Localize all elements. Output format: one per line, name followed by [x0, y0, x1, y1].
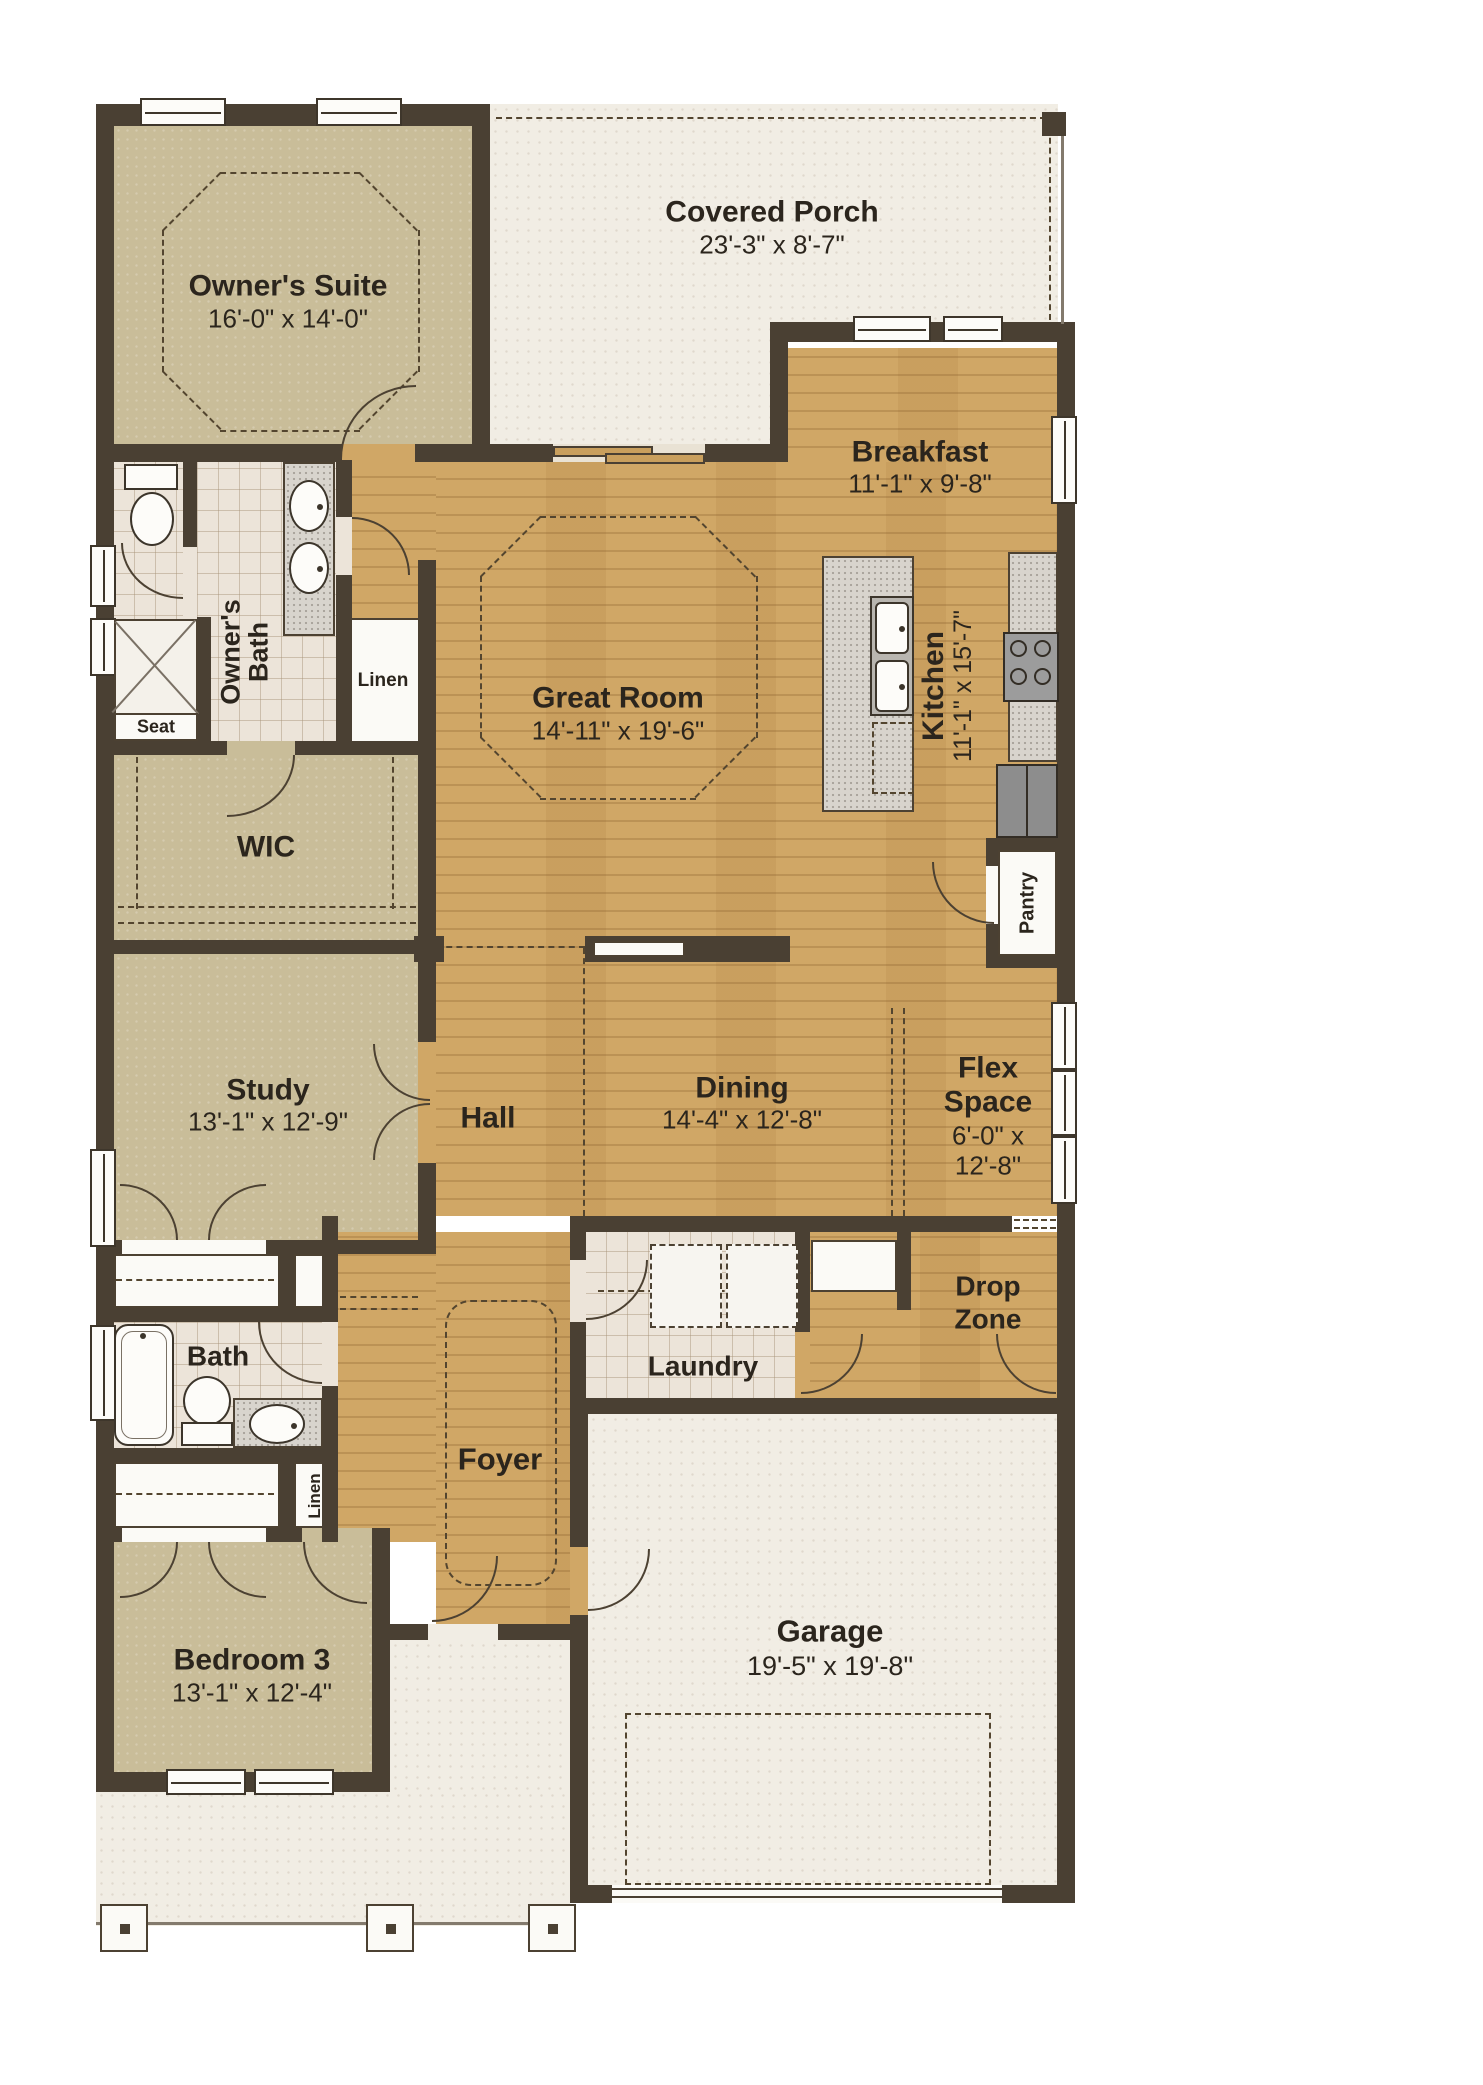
dashed-line: [903, 1008, 905, 1216]
dashed-line: [540, 798, 696, 800]
burner-icon: [1010, 640, 1027, 657]
window-sash-line: [171, 1782, 241, 1784]
wall-segment: [280, 1462, 294, 1528]
window-sash-line: [1064, 1141, 1066, 1199]
front-porch-floor-entry: [390, 1640, 570, 1790]
covered-porch-label: Covered Porch: [665, 196, 878, 228]
porch-post: [528, 1904, 576, 1952]
wall-segment: [96, 940, 436, 954]
laundry-label: Laundry: [648, 1351, 758, 1380]
dining-dims: 14'-4" x 12'-8": [662, 1106, 822, 1133]
window-sash-line: [103, 623, 105, 671]
dashed-outline: [625, 1713, 991, 1885]
study-label: Study: [226, 1074, 309, 1106]
window: [1051, 416, 1077, 504]
door-opening: [183, 545, 197, 619]
wall-segment: [96, 444, 342, 462]
dashed-line: [436, 946, 585, 948]
bath-sink: [249, 1404, 305, 1444]
flex-space-dims: 12'-8": [955, 1152, 1021, 1179]
breakfast-dims: 11'-1" x 9'-8": [848, 470, 992, 497]
refrigerator-door-split: [1026, 766, 1028, 836]
flex-space-label: Space: [944, 1086, 1032, 1118]
washer: [650, 1244, 722, 1328]
wall-segment: [472, 104, 490, 462]
wall-segment: [414, 936, 444, 962]
linen-label: Linen: [358, 671, 409, 691]
sink-basin: [875, 660, 909, 712]
dashed-line: [496, 117, 1046, 119]
garage-dims: 19'-5" x 19'-8": [747, 1652, 913, 1680]
window-sash-line: [103, 1330, 105, 1416]
wall-segment: [266, 1528, 302, 1542]
window: [1051, 1070, 1077, 1136]
window-sash-line: [948, 329, 998, 331]
covered-porch-dims: 23'-3" x 8'-7": [699, 231, 844, 258]
dashed-line: [118, 922, 416, 924]
window: [90, 1149, 116, 1247]
wall-segment: [986, 956, 1075, 968]
window: [254, 1769, 334, 1795]
dashed-line: [1014, 1219, 1056, 1221]
bathtub-inner: [121, 1331, 167, 1439]
pantry-label: Pantry: [1018, 872, 1039, 934]
dryer: [726, 1244, 798, 1328]
flex-space-label: Flex: [958, 1052, 1018, 1084]
door-opening: [428, 1624, 498, 1640]
study-dims: 13'-1" x 12'-9": [188, 1108, 348, 1135]
bedroom3-label: Bedroom 3: [174, 1644, 331, 1676]
wall-segment: [570, 1398, 588, 1547]
dashed-line: [891, 1008, 893, 1216]
dashed-line: [220, 430, 360, 432]
sliding-door-panel: [605, 453, 705, 464]
dashed-line: [118, 906, 416, 908]
window: [90, 1325, 116, 1421]
window: [853, 316, 931, 342]
wall-segment: [183, 460, 197, 547]
toilet-bowl: [183, 1376, 231, 1426]
wall-segment: [96, 1448, 336, 1462]
door-opening: [322, 1322, 338, 1386]
wall-segment: [322, 1216, 338, 1322]
great-room-dims: 14'-11" x 19'-6": [532, 717, 704, 744]
sink-basin: [875, 602, 909, 654]
drop-zone-bench: [811, 1240, 897, 1292]
dashed-line: [480, 576, 482, 738]
window: [316, 98, 402, 126]
window: [166, 1769, 246, 1795]
door-opening: [336, 517, 352, 577]
window: [140, 98, 226, 126]
porch-slab-edge-right: [1061, 114, 1064, 324]
garage-door-line: [612, 1888, 1002, 1890]
door-opening: [227, 741, 295, 755]
cased-opening: [593, 941, 685, 957]
window-sash-line: [858, 329, 926, 331]
toilet-tank: [124, 464, 178, 490]
burner-icon: [1010, 668, 1027, 685]
bedroom3-dims: 13'-1" x 12'-4": [172, 1679, 332, 1706]
wall-segment: [570, 1216, 586, 1260]
wall-segment: [336, 460, 352, 517]
window: [1051, 1136, 1077, 1204]
wall-segment: [415, 444, 555, 462]
corridor-floor: [338, 1232, 436, 1542]
wall-segment: [295, 741, 436, 755]
dashed-line: [540, 516, 696, 518]
wall-segment: [280, 1254, 294, 1308]
toilet-tank: [181, 1422, 233, 1446]
wall-segment: [266, 1240, 436, 1254]
wall-segment: [770, 322, 788, 462]
kitchen-label: Kitchen 11'-1" x 15'-7": [918, 610, 976, 762]
dashed-line: [1049, 128, 1051, 320]
tub-faucet: [140, 1333, 146, 1339]
dashed-line: [340, 1296, 418, 1298]
dashed-line: [340, 1308, 418, 1310]
wall-segment: [322, 1386, 338, 1542]
wall-segment: [588, 1885, 614, 1903]
window-sash-line: [1064, 1075, 1066, 1131]
dashed-line: [418, 230, 420, 372]
vanity-sink: [289, 480, 329, 532]
window-sash-line: [1064, 421, 1066, 499]
seat-label: Seat: [137, 718, 175, 737]
window-sash-line: [259, 1782, 329, 1784]
owners-bath-label: Owner's Bath: [217, 599, 274, 704]
window: [90, 618, 116, 676]
wall-segment: [96, 1308, 336, 1322]
breakfast-label: Breakfast: [852, 436, 989, 468]
porch-corner-post: [1042, 112, 1066, 136]
dashed-line: [136, 757, 138, 909]
wic-label: WIC: [237, 831, 295, 863]
window: [90, 545, 116, 607]
owners-suite-dims: 16'-0" x 14'-0": [208, 305, 368, 332]
wall-segment: [897, 1232, 911, 1310]
dining-label: Dining: [695, 1072, 788, 1104]
burner-icon: [1034, 640, 1051, 657]
floor-plan: Covered Porch 23'-3" x 8'-7" Owner's Sui…: [0, 0, 1483, 2085]
window-sash-line: [103, 1154, 105, 1242]
wall-segment: [96, 741, 227, 755]
toilet-bowl: [130, 492, 174, 546]
wall-segment: [570, 1398, 1075, 1414]
door-opening: [122, 1240, 266, 1254]
wall-segment: [418, 560, 436, 1042]
great-room-label: Great Room: [532, 682, 704, 714]
study-closet: [114, 1254, 280, 1308]
dashed-line: [756, 576, 758, 738]
door-opening: [122, 1528, 268, 1542]
wall-segment: [986, 924, 998, 960]
front-porch-slab-edge: [96, 1922, 570, 1925]
front-porch-floor: [96, 1790, 570, 1926]
owners-suite-label: Owner's Suite: [189, 270, 388, 302]
porch-post: [100, 1904, 148, 1952]
wall-segment: [570, 1322, 586, 1400]
wall-segment: [986, 838, 1075, 850]
hall-label: Hall: [460, 1102, 515, 1134]
dashed-line: [392, 757, 394, 909]
window-sash-line: [103, 550, 105, 602]
wall-segment: [197, 617, 211, 743]
dashed-line: [1014, 1227, 1056, 1229]
covered-porch-floor-lower: [490, 324, 770, 462]
wall-segment: [96, 1528, 122, 1542]
dashed-line: [162, 230, 164, 372]
dashed-line: [220, 172, 360, 174]
wall-segment: [418, 1163, 436, 1242]
linen-label: Linen: [306, 1473, 324, 1518]
porch-post: [366, 1904, 414, 1952]
wall-segment: [570, 1615, 588, 1903]
bath-label: Bath: [187, 1341, 249, 1370]
wall-segment: [1000, 1885, 1075, 1903]
window-sash-line: [145, 112, 221, 114]
bedroom3-closet: [114, 1462, 280, 1528]
wall-segment: [336, 575, 352, 743]
burner-icon: [1034, 668, 1051, 685]
door-opening: [570, 1547, 588, 1615]
door-opening: [570, 1260, 586, 1322]
wall-segment: [586, 1216, 1012, 1232]
dashed-line: [116, 1279, 274, 1281]
wall-segment: [372, 1528, 390, 1790]
drop-zone-label: Zone: [955, 1304, 1022, 1333]
dashed-line: [583, 948, 585, 1216]
garage-door-line: [612, 1896, 1002, 1898]
window-sash-line: [321, 112, 397, 114]
foyer-label: Foyer: [458, 1444, 542, 1477]
vanity-sink: [289, 542, 329, 594]
window: [1051, 1002, 1077, 1070]
window-sash-line: [1064, 1007, 1066, 1065]
flex-space-dims: 6'-0" x: [952, 1122, 1024, 1149]
dashed-line: [116, 1493, 274, 1495]
window: [943, 316, 1003, 342]
drop-zone-label: Drop: [955, 1271, 1020, 1300]
garage-label: Garage: [777, 1616, 884, 1649]
dishwasher: [872, 722, 914, 794]
